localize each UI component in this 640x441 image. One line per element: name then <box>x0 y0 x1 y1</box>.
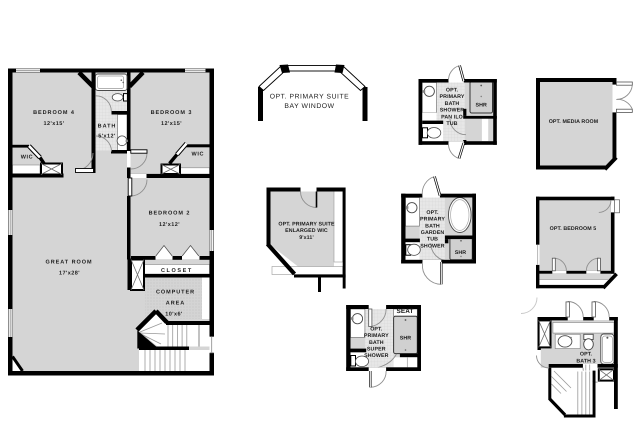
svg-text:BAY WINDOW: BAY WINDOW <box>284 103 334 110</box>
svg-text:SUPER: SUPER <box>367 347 386 353</box>
svg-text:GARDEN: GARDEN <box>421 230 445 236</box>
svg-text:OPT.: OPT. <box>446 88 459 94</box>
svg-text:AREA: AREA <box>166 300 185 306</box>
svg-text:10'x6': 10'x6' <box>165 311 183 317</box>
svg-text:OPT. BEDROOM 5: OPT. BEDROOM 5 <box>550 226 597 232</box>
svg-text:PAN ILO: PAN ILO <box>441 114 463 120</box>
svg-text:BATH: BATH <box>425 223 440 229</box>
svg-text:PRIMARY: PRIMARY <box>420 217 445 223</box>
svg-text:SHR: SHR <box>400 335 412 341</box>
svg-text:BEDROOM 2: BEDROOM 2 <box>149 211 191 217</box>
svg-text:17'x28': 17'x28' <box>59 271 80 277</box>
svg-text:12'x12': 12'x12' <box>159 222 180 228</box>
svg-text:12'x15': 12'x15' <box>43 121 64 127</box>
svg-text:WIC: WIC <box>192 151 205 157</box>
svg-text:OPT.: OPT. <box>580 351 593 357</box>
svg-text:BATH: BATH <box>445 101 460 107</box>
svg-text:SHOWER: SHOWER <box>364 353 389 359</box>
svg-text:BATH 3: BATH 3 <box>576 358 595 364</box>
svg-text:OPT.: OPT. <box>426 210 439 216</box>
svg-text:5'x12': 5'x12' <box>98 134 116 140</box>
svg-text:CLOSET: CLOSET <box>161 268 193 274</box>
svg-text:BEDROOM 3: BEDROOM 3 <box>151 110 193 116</box>
svg-text:OPT. PRIMARY SUITE: OPT. PRIMARY SUITE <box>270 94 350 101</box>
svg-text:TUB: TUB <box>446 121 457 127</box>
svg-text:BEDROOM 4: BEDROOM 4 <box>33 110 75 116</box>
svg-text:OPT.: OPT. <box>370 327 383 333</box>
svg-text:BATH: BATH <box>369 340 384 346</box>
svg-text:ENLARGED WIC: ENLARGED WIC <box>285 228 328 234</box>
svg-text:OPT. PRIMARY SUITE: OPT. PRIMARY SUITE <box>278 222 335 228</box>
svg-text:9'x11': 9'x11' <box>299 235 314 241</box>
svg-text:SHOWER: SHOWER <box>420 243 445 249</box>
svg-text:SHOWER: SHOWER <box>440 108 465 114</box>
svg-text:12'x15': 12'x15' <box>161 121 182 127</box>
svg-text:BATH: BATH <box>98 124 117 130</box>
svg-text:SHR: SHR <box>455 250 467 256</box>
svg-text:OPT. MEDIA ROOM: OPT. MEDIA ROOM <box>549 119 599 125</box>
svg-text:PRIMARY: PRIMARY <box>364 333 389 339</box>
svg-text:SEAT: SEAT <box>397 308 414 315</box>
svg-text:COMPUTER: COMPUTER <box>156 290 195 296</box>
svg-text:WIC: WIC <box>21 154 34 160</box>
svg-text:SHR: SHR <box>475 103 487 109</box>
svg-text:PRIMARY: PRIMARY <box>440 94 465 100</box>
svg-text:TUB: TUB <box>427 237 438 243</box>
svg-text:GREAT ROOM: GREAT ROOM <box>46 260 93 266</box>
